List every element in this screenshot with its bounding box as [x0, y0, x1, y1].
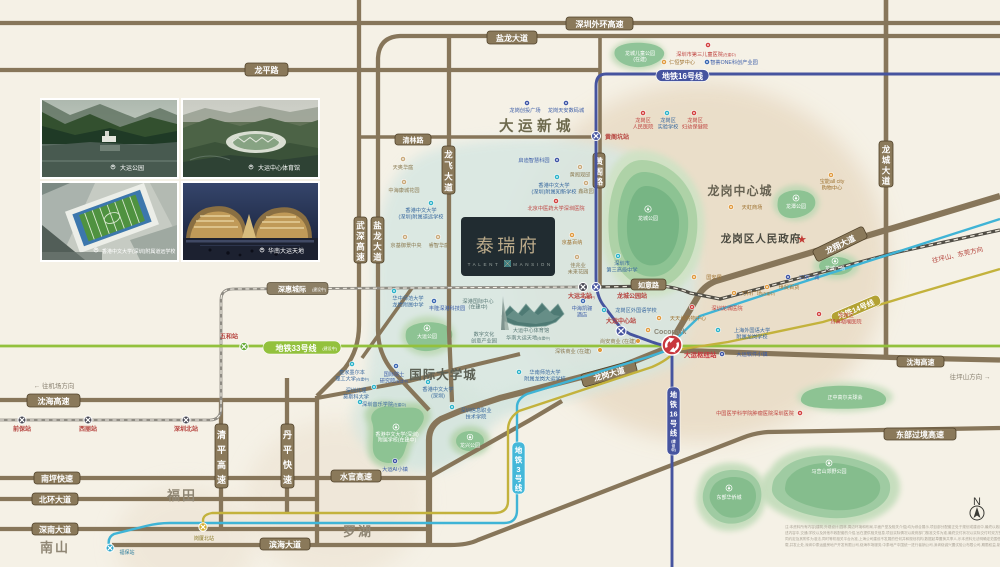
svg-text:龙岗创投广场: 龙岗创投广场	[509, 106, 540, 114]
svg-text:未来花园: 未来花园	[568, 268, 589, 276]
svg-text:如意路: 如意路	[638, 281, 660, 290]
svg-text:东部过境高速: 东部过境高速	[896, 430, 944, 440]
svg-text:龙城公园站: 龙城公园站	[617, 292, 647, 300]
svg-text:前保站: 前保站	[13, 425, 31, 433]
svg-text:香港中文大学: 香港中文大学	[538, 181, 569, 189]
svg-text:东部华侨城: 东部华侨城	[716, 494, 741, 501]
svg-text:福田: 福田	[166, 488, 197, 503]
svg-text:(在建中): (在建中)	[468, 303, 487, 311]
svg-text:龙兴公园: 龙兴公园	[460, 442, 480, 449]
svg-text:福保站: 福保站	[119, 549, 134, 556]
svg-text:TALENT: TALENT	[468, 262, 501, 267]
svg-text:中国医学科学院肿瘤医院深圳医院: 中国医学科学院肿瘤医院深圳医院	[716, 409, 795, 417]
svg-text:龙岗区: 龙岗区	[687, 116, 703, 124]
svg-text:香港中文大学: 香港中文大学	[422, 385, 453, 393]
svg-text:MANSION: MANSION	[513, 262, 553, 267]
svg-text:天虹商场: 天虹商场	[742, 203, 763, 211]
svg-text:黄阁观邸: 黄阁观邸	[570, 171, 591, 179]
svg-text:龙城大道: 龙城大道	[881, 144, 891, 186]
svg-text:深南大道: 深南大道	[39, 525, 71, 535]
svg-text:尚安商业 (在建): 尚安商业 (在建)	[600, 337, 636, 345]
svg-text:正中高尔夫球会: 正中高尔夫球会	[827, 394, 862, 401]
svg-text:龙城广场: 龙城广场	[825, 265, 845, 272]
svg-text:中海凯骊: 中海凯骊	[572, 304, 593, 312]
svg-text:中海康城花园: 中海康城花园	[388, 186, 419, 194]
svg-text:莫斯科大学: 莫斯科大学	[343, 393, 369, 401]
svg-text:岗厦北站: 岗厦北站	[194, 535, 214, 542]
svg-text:北环大道: 北环大道	[39, 495, 71, 505]
svg-text:大运AI小镇: 大运AI小镇	[382, 465, 408, 473]
svg-text:深圳北理: 深圳北理	[346, 386, 368, 394]
svg-text:睿智华庭: 睿智华庭	[429, 241, 450, 249]
svg-text:南山: 南山	[40, 540, 70, 555]
svg-text:Cocopark: Cocopark	[654, 329, 686, 336]
svg-text:技术学院: 技术学院	[466, 413, 488, 421]
svg-text:宝能all city: 宝能all city	[820, 177, 845, 185]
svg-text:佳兆业: 佳兆业	[570, 261, 586, 269]
svg-text:国际大学城: 国际大学城	[409, 367, 477, 382]
svg-text:地铁16号线: 地铁16号线	[670, 391, 678, 438]
svg-text:西丽站: 西丽站	[79, 425, 97, 433]
svg-text:龙岗区: 龙岗区	[838, 311, 854, 319]
svg-text:国际院士: 国际院士	[384, 370, 405, 378]
svg-text:鑫政园: 鑫政园	[578, 187, 594, 195]
svg-text:深圳北站: 深圳北站	[174, 425, 198, 433]
svg-text:智荟ONE科创产业园: 智荟ONE科创产业园	[710, 58, 758, 66]
svg-text:大运公园: 大运公园	[417, 333, 437, 340]
svg-text:北京中医药大学深圳医院: 北京中医药大学深圳医院	[527, 204, 585, 212]
svg-text:三馆一城: 三馆一城	[799, 273, 821, 281]
svg-text:马峦山郊野公园: 马峦山郊野公园	[811, 468, 846, 475]
svg-text:龙岗中心城: 龙岗中心城	[707, 183, 772, 198]
svg-text:★: ★	[797, 234, 807, 246]
svg-text:(建设中): (建设中)	[322, 345, 337, 351]
svg-text:京基御景中央: 京基御景中央	[390, 241, 422, 249]
svg-text:载,并发止处,深圳中泰运盛房地产开发有限公司,绕海市场服务,: 载,并发止处,深圳中泰运盛房地产开发有限公司,绕海市场服务,中泰地产中国统一进行…	[785, 542, 1000, 547]
svg-text:龙岗区人民政府: 龙岗区人民政府	[720, 232, 802, 245]
svg-text:华南师范大学: 华南师范大学	[529, 368, 560, 376]
svg-text:天奥华庭: 天奥华庭	[393, 163, 414, 171]
svg-text:启迪智慧科园: 启迪智慧科园	[518, 156, 549, 164]
svg-text:购物中心: 购物中心	[822, 184, 843, 192]
svg-text:深圳信息职业: 深圳信息职业	[460, 406, 491, 414]
svg-text:附属龙岗学校: 附属龙岗学校	[736, 333, 767, 341]
svg-text:龙岗附属中学: 龙岗附属中学	[392, 301, 423, 309]
svg-text:妇幼保健院: 妇幼保健院	[682, 123, 709, 131]
svg-text:南坪快速: 南坪快速	[41, 474, 73, 484]
svg-text:五和站: 五和站	[220, 333, 238, 341]
svg-text:滨海大道: 滨海大道	[269, 540, 301, 550]
svg-text:武深高速: 武深高速	[356, 220, 365, 262]
svg-text:述内容中,交通,学校以及其他市政配套的介绍,旨在提供相关信息: 述内容中,交通,学校以及其他市政配套的介绍,旨在提供相关信息,项目实际情况以政府…	[785, 530, 1000, 535]
svg-text:同约定及其附件为准法,同时等机相关平台为准,上海公司建设不发: 同约定及其附件为准法,同时等机相关平台为准,上海公司建设不发展的任何并和规划机构…	[785, 536, 1000, 541]
svg-text:香港中文大学(深圳)附属道远学校: 香港中文大学(深圳)附属道远学校	[102, 248, 175, 255]
svg-text:(深圳)附属知新学校: (深圳)附属知新学校	[532, 188, 577, 196]
svg-text:龙岗区外国语学校: 龙岗区外国语学校	[615, 306, 657, 314]
svg-text:仁恒梦中心: 仁恒梦中心	[669, 58, 695, 66]
svg-text:(建设中): (建设中)	[312, 287, 327, 292]
svg-text:耳鼻咽喉医院: 耳鼻咽喉医院	[830, 318, 862, 326]
svg-text:盐龙大道: 盐龙大道	[496, 33, 528, 43]
svg-text:龙飞大道: 龙飞大道	[443, 150, 453, 193]
svg-text:人民医院: 人民医院	[633, 123, 655, 131]
svg-text:(深圳)附属道远学校: (深圳)附属道远学校	[399, 213, 444, 221]
svg-text:华中师范大学: 华中师范大学	[392, 294, 423, 302]
svg-text:深圳外环高速: 深圳外环高速	[576, 19, 624, 29]
svg-text:龙岗天安数码城: 龙岗天安数码城	[548, 106, 585, 114]
svg-text:黄阁坑站: 黄阁坑站	[605, 133, 629, 141]
svg-text:世贸百货: 世贸百货	[779, 283, 800, 291]
svg-text:地铁16号线: 地铁16号线	[662, 71, 703, 81]
svg-text:龙潭公园: 龙潭公园	[786, 203, 806, 210]
svg-text:沈海高速: 沈海高速	[38, 396, 70, 406]
svg-text:天天城购物中心: 天天城购物中心	[670, 314, 706, 322]
svg-text:龙城公园: 龙城公园	[638, 215, 658, 222]
svg-text:大运枢纽站: 大运枢纽站	[684, 350, 717, 359]
svg-text:第三高级中学: 第三高级中学	[606, 266, 637, 274]
svg-text:附属学校(在建中): 附属学校(在建中)	[378, 437, 417, 444]
svg-text:龙平路: 龙平路	[254, 65, 280, 75]
svg-text:附属龙岗大运学校: 附属龙岗大运学校	[524, 375, 566, 383]
svg-text:大运公园: 大运公园	[120, 164, 144, 172]
svg-text:创意产业园: 创意产业园	[471, 337, 497, 345]
svg-text:皇家墨尔本: 皇家墨尔本	[339, 368, 365, 376]
svg-text:地铁33号线: 地铁33号线	[276, 343, 317, 353]
svg-text:盐龙大道: 盐龙大道	[372, 220, 382, 262]
svg-text:龙岗区: 龙岗区	[635, 116, 651, 124]
svg-text:深铁商业 (在建): 深铁商业 (在建)	[555, 347, 591, 355]
svg-text:实验学校: 实验学校	[658, 123, 679, 131]
svg-text:大运中心站: 大运中心站	[606, 317, 636, 325]
svg-text:丰隆深港科技园: 丰隆深港科技园	[429, 304, 465, 312]
svg-text:大运中心体育馆: 大运中心体育馆	[258, 164, 300, 172]
svg-text:(深圳): (深圳)	[431, 392, 445, 400]
svg-text:京基百纳: 京基百纳	[562, 238, 583, 246]
svg-text:清林路: 清林路	[403, 136, 425, 145]
svg-text:香港中文大学: 香港中文大学	[405, 206, 436, 214]
svg-text:水官高速: 水官高速	[339, 472, 372, 482]
svg-text:大运软件小镇: 大运软件小镇	[736, 350, 767, 358]
svg-text:往坪山方向 →: 往坪山方向 →	[950, 372, 991, 381]
svg-text:深惠城际: 深惠城际	[278, 285, 306, 294]
svg-text:(在建): (在建)	[633, 56, 647, 63]
svg-text:龙城儿童公园: 龙城儿童公园	[625, 50, 655, 57]
svg-text:国安居: 国安居	[706, 273, 722, 281]
svg-text:沈海高速: 沈海高速	[907, 358, 935, 367]
svg-text:罗湖: 罗湖	[343, 524, 373, 539]
svg-text:大运新城: 大运新城	[499, 117, 575, 135]
svg-text:大运中心体育馆: 大运中心体育馆	[513, 326, 549, 334]
svg-text:深圳市: 深圳市	[614, 259, 630, 267]
svg-text:泰瑞府: 泰瑞府	[476, 236, 541, 256]
svg-text:深圳龙城医院: 深圳龙城医院	[711, 304, 743, 312]
svg-text:上海外国语大学: 上海外国语大学	[734, 326, 770, 334]
svg-text:华南大运天地: 华南大运天地	[268, 247, 304, 255]
svg-text:龙岗区: 龙岗区	[660, 116, 676, 124]
svg-text:← 往机场方向: ← 往机场方向	[34, 381, 75, 390]
svg-text:注:本资料所有内容(建筑,外观设计,园林,周边环境和布局,平: 注:本资料所有内容(建筑,外观设计,园林,周边环境和布局,平面户型及相关介绍)均…	[785, 524, 1000, 529]
svg-text:酒店: 酒店	[577, 311, 587, 319]
svg-text:数字文化: 数字文化	[474, 330, 495, 338]
